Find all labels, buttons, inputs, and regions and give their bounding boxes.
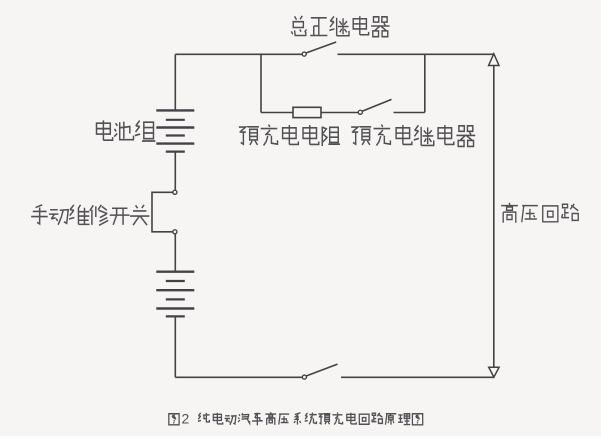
svg-text:2: 2 (182, 411, 190, 427)
